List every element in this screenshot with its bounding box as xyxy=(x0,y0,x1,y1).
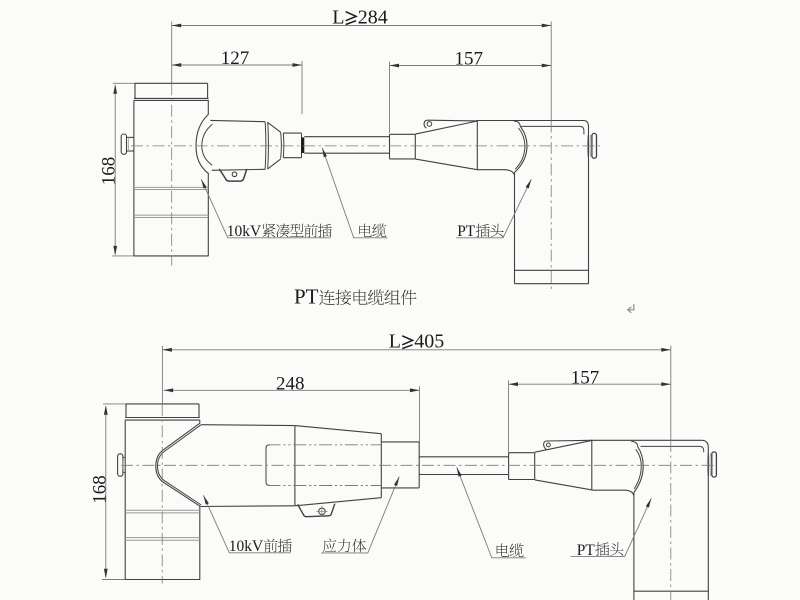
svg-text:PT: PT xyxy=(457,223,476,240)
svg-text:L: L xyxy=(389,330,401,352)
svg-text:157: 157 xyxy=(454,49,483,70)
svg-text:127: 127 xyxy=(221,48,250,69)
svg-text:10kV: 10kV xyxy=(229,538,264,555)
svg-text:10kV: 10kV xyxy=(227,223,262,240)
svg-text:PT: PT xyxy=(577,542,596,559)
svg-text:405: 405 xyxy=(414,330,444,352)
svg-text:284: 284 xyxy=(358,6,388,28)
svg-text:L: L xyxy=(332,6,344,28)
svg-text:157: 157 xyxy=(571,367,600,388)
svg-text:168: 168 xyxy=(89,475,110,504)
svg-text:168: 168 xyxy=(99,157,120,186)
svg-text:PT: PT xyxy=(294,285,319,309)
svg-text:248: 248 xyxy=(276,374,305,395)
